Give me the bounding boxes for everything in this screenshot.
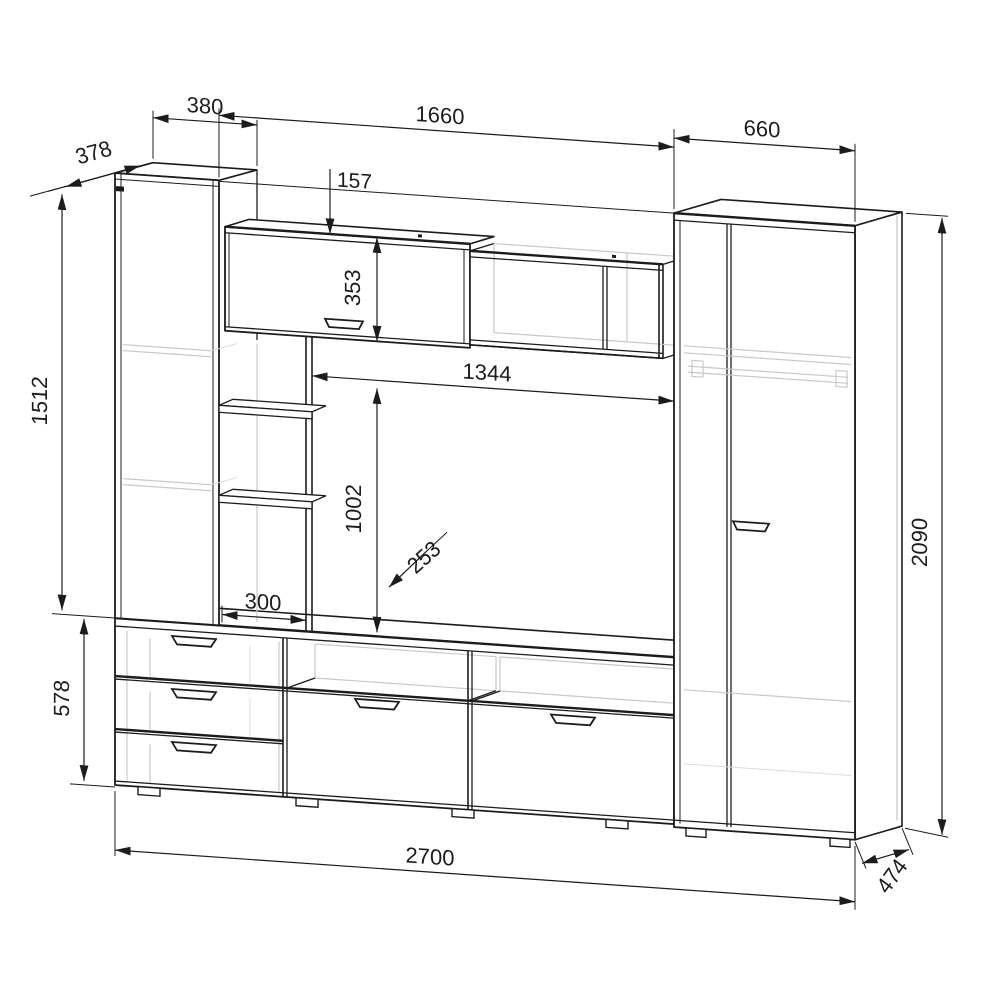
tv-stand-foot <box>606 819 628 829</box>
wardrobe-foot <box>686 828 706 837</box>
dim-label-300: 300 <box>245 588 282 616</box>
wardrobe-foot <box>830 838 850 847</box>
furniture-drawing-page: 378 380 157 1660 <box>0 0 1008 1008</box>
furniture-drawing: 378 380 157 1660 <box>0 0 1008 1008</box>
dim-label-2090: 2090 <box>907 517 932 568</box>
tv-stand-foot <box>296 798 318 808</box>
dim-label-353: 353 <box>340 268 365 306</box>
dim-label-1344: 1344 <box>463 358 512 386</box>
dim-label-2700: 2700 <box>406 842 455 870</box>
dim-label-157: 157 <box>337 169 372 194</box>
dim-label-1002: 1002 <box>341 483 366 534</box>
tv-stand-foot <box>138 787 160 797</box>
dim-label-380: 380 <box>187 92 224 120</box>
dim-label-1660: 1660 <box>416 101 465 129</box>
dim-label-578: 578 <box>49 679 74 717</box>
hinge-mark <box>116 186 124 192</box>
wall-cabinet-handle <box>325 319 363 330</box>
wardrobe <box>674 196 902 851</box>
dim-label-660: 660 <box>744 115 781 143</box>
dim-label-1512: 1512 <box>27 375 52 426</box>
wardrobe-handle <box>733 521 769 532</box>
tv-stand-foot <box>452 809 474 819</box>
